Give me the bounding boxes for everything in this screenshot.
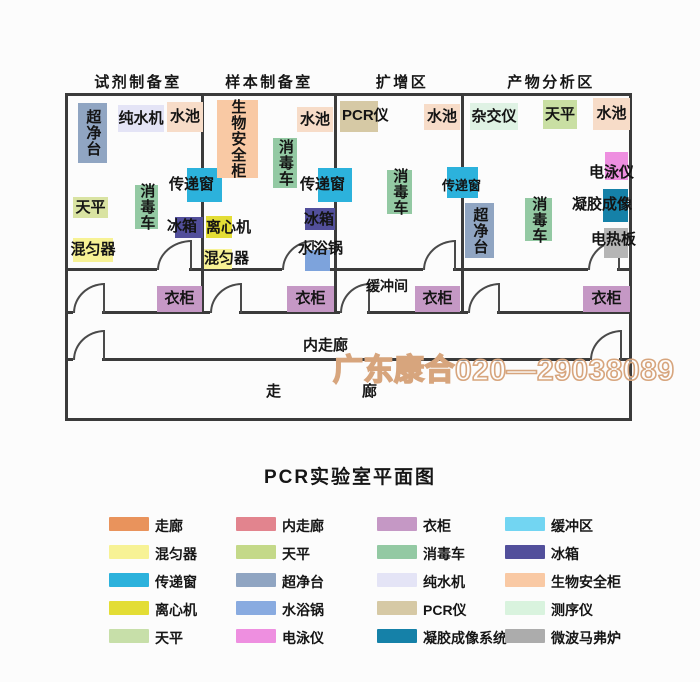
- legend-label: 缓冲区: [551, 516, 593, 536]
- area-label: 廊: [362, 380, 377, 401]
- equipment-box: 纯水机: [118, 105, 164, 132]
- legend-swatch: [236, 629, 276, 643]
- legend-swatch: [377, 545, 417, 559]
- wall-h2: [66, 311, 73, 314]
- equipment-label: 冰箱: [304, 212, 334, 228]
- legend-label: 水浴锅: [282, 600, 324, 620]
- legend-label: 离心机: [155, 600, 197, 620]
- equipment-label: 杂交仪: [471, 109, 516, 125]
- equipment-label: 消毒车: [531, 196, 547, 244]
- equipment-box: 超净台: [465, 203, 494, 258]
- page-title: PCR实验室平面图: [0, 462, 700, 489]
- equipment-label: 混匀器: [204, 251, 249, 267]
- equipment-label: 电泳仪: [589, 165, 634, 181]
- legend-label: 冰箱: [551, 544, 579, 564]
- zone-label: 扩增区: [374, 71, 430, 92]
- area-label: 走: [266, 380, 281, 401]
- legend-swatch: [236, 517, 276, 531]
- equipment-label: 衣柜: [164, 291, 194, 307]
- equipment-box: 衣柜: [157, 286, 202, 312]
- equipment-label: 超净台: [85, 109, 101, 157]
- pcr-lab-floorplan-image: 广东康合020—29038089 试剂制备室样本制备室扩增区产物分析区缓冲间内走…: [0, 0, 700, 682]
- legend-swatch: [505, 573, 545, 587]
- legend-swatch: [109, 517, 149, 531]
- legend-swatch: [505, 629, 545, 643]
- legend-label: 混匀器: [155, 544, 197, 564]
- legend-label: 测序仪: [551, 600, 593, 620]
- legend-swatch: [109, 573, 149, 587]
- equipment-label: 传递窗: [300, 177, 345, 193]
- equipment-box: 衣柜: [287, 286, 334, 312]
- equipment-label: 水浴锅: [298, 241, 343, 257]
- wall-vertical-3: [461, 95, 464, 313]
- legend-label: 生物安全柜: [551, 572, 621, 592]
- equipment-box: 水池: [297, 107, 333, 132]
- equipment-label: 衣柜: [295, 291, 325, 307]
- legend-swatch: [505, 601, 545, 615]
- watermark-text: 广东康合020—29038089: [333, 345, 675, 389]
- legend-label: 纯水机: [423, 572, 465, 592]
- equipment-label: PCR仪: [342, 108, 389, 124]
- equipment-box: 水池: [424, 104, 460, 130]
- legend-label: 消毒车: [423, 544, 465, 564]
- legend-label: 凝胶成像系统: [423, 628, 507, 648]
- equipment-box: 杂交仪: [470, 103, 518, 130]
- legend-swatch: [109, 601, 149, 615]
- legend-swatch: [505, 517, 545, 531]
- equipment-label: 纯水机: [118, 111, 163, 127]
- equipment-box: 生物安全柜: [217, 100, 258, 178]
- equipment-box: 消毒车: [387, 170, 412, 214]
- floor-plan: 广东康合020—29038089 试剂制备室样本制备室扩增区产物分析区缓冲间内走…: [0, 0, 700, 460]
- equipment-box: 衣柜: [583, 286, 630, 312]
- zone-label: 样本制备室: [222, 71, 316, 92]
- legend-swatch: [377, 629, 417, 643]
- legend-label: 电泳仪: [282, 628, 324, 648]
- equipment-label: 冰箱: [167, 219, 197, 235]
- zone-label: 产物分析区: [504, 71, 598, 92]
- equipment-label: 水池: [170, 109, 200, 125]
- wall-h1: [189, 268, 282, 271]
- equipment-label: 混匀器: [71, 242, 116, 258]
- equipment-label: 传递窗: [169, 177, 214, 193]
- zone-label: 试剂制备室: [92, 71, 184, 92]
- equipment-label: 消毒车: [277, 139, 293, 187]
- legend-swatch: [377, 601, 417, 615]
- legend-label: 内走廊: [282, 516, 324, 536]
- legend-swatch: [377, 517, 417, 531]
- equipment-box: 消毒车: [525, 198, 552, 241]
- equipment-label: 天平: [75, 200, 105, 216]
- equipment-box: 超净台: [78, 103, 107, 163]
- legend-label: PCR仪: [423, 600, 467, 620]
- legend-label: 传递窗: [155, 572, 197, 592]
- legend-label: 微波马弗炉: [551, 628, 621, 648]
- equipment-box: 天平: [73, 197, 108, 218]
- legend-label: 天平: [282, 544, 310, 564]
- wall-vertical-2: [334, 95, 337, 313]
- legend-swatch: [236, 573, 276, 587]
- equipment-box: 消毒车: [273, 138, 297, 188]
- equipment-label: 凝胶成像: [572, 197, 632, 213]
- equipment-label: 消毒车: [392, 168, 408, 216]
- equipment-label: 水池: [427, 109, 457, 125]
- legend-swatch: [236, 601, 276, 615]
- equipment-box: 衣柜: [415, 286, 460, 312]
- equipment-label: 衣柜: [422, 291, 452, 307]
- wall-h1: [66, 268, 157, 271]
- equipment-box: 水池: [167, 102, 203, 132]
- legend-label: 超净台: [282, 572, 324, 592]
- equipment-label: 离心机: [206, 220, 251, 236]
- area-label: 缓冲间: [366, 276, 408, 296]
- legend-swatch: [377, 573, 417, 587]
- equipment-label: 传递窗: [442, 179, 481, 193]
- legend-swatch: [236, 545, 276, 559]
- legend-label: 衣柜: [423, 516, 451, 536]
- equipment-box: 水池: [593, 98, 630, 130]
- equipment-label: 生物安全柜: [230, 99, 246, 179]
- wall-h1: [453, 268, 588, 271]
- legend-swatch: [109, 545, 149, 559]
- wall-h3: [66, 358, 73, 361]
- legend-label: 天平: [155, 628, 183, 648]
- equipment-label: 水池: [596, 106, 626, 122]
- equipment-label: 天平: [545, 107, 575, 123]
- legend-label: 走廊: [155, 516, 183, 536]
- area-label: 内走廊: [303, 334, 348, 355]
- equipment-label: 消毒车: [139, 183, 155, 231]
- equipment-box: 消毒车: [135, 185, 158, 229]
- equipment-label: 水池: [300, 112, 330, 128]
- equipment-label: 超净台: [472, 207, 488, 255]
- equipment-label: 衣柜: [591, 291, 621, 307]
- legend-swatch: [109, 629, 149, 643]
- equipment-box: 混匀器: [73, 238, 113, 262]
- legend-swatch: [505, 545, 545, 559]
- equipment-label: 电热板: [591, 232, 636, 248]
- equipment-box: 天平: [543, 100, 577, 129]
